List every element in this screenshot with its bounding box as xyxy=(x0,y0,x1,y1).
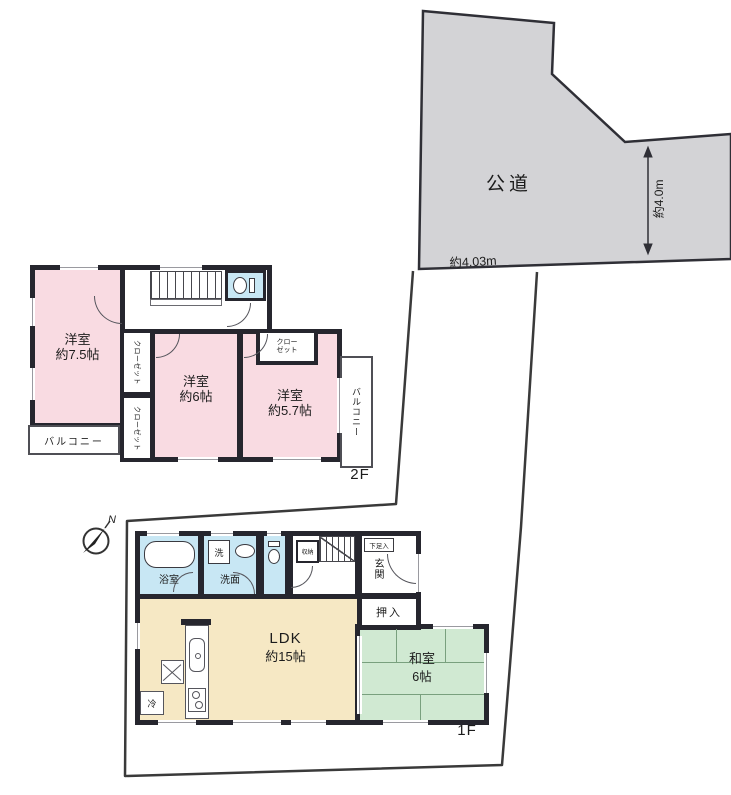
room-5-7-label: 洋室 約5.7帖 xyxy=(238,389,342,419)
room-6-name: 洋室 xyxy=(183,374,209,389)
room-7-5-label: 洋室 約7.5帖 xyxy=(30,333,125,363)
window xyxy=(433,624,473,629)
kitchen-sink-icon xyxy=(189,638,205,672)
compass-icon: N xyxy=(83,514,116,554)
room-7-5-name: 洋室 xyxy=(64,332,90,347)
floor2-plan: クローゼット クローゼット クロー ゼット バルコニー バルコニー 洋室 xyxy=(28,263,380,487)
room-5-7-size: 約5.7帖 xyxy=(268,403,312,418)
window xyxy=(267,531,281,536)
tatami-line xyxy=(420,694,421,720)
shoe-cabinet: 下足入 xyxy=(364,538,394,552)
window xyxy=(273,457,321,462)
window xyxy=(158,720,196,725)
tatami-line xyxy=(360,694,484,695)
window xyxy=(211,531,233,536)
toilet-icon-1f xyxy=(268,549,280,564)
ldk-name: LDK xyxy=(269,630,301,647)
window xyxy=(291,720,326,725)
stairs-ledge xyxy=(150,299,222,306)
public-road-area xyxy=(419,11,731,269)
washitsu-size: 6帖 xyxy=(412,670,431,684)
balcony-bottom: バルコニー xyxy=(28,425,120,455)
north-label: N xyxy=(108,514,116,526)
balcony-bottom-label: バルコニー xyxy=(44,433,104,448)
room-7-5-size: 約7.5帖 xyxy=(55,347,99,362)
closet-upper-label: クローゼット xyxy=(132,340,142,385)
balcony-right: バルコニー xyxy=(340,356,373,468)
toilet-room-2f xyxy=(225,270,266,301)
basin-icon xyxy=(235,544,255,558)
window xyxy=(233,720,281,725)
window xyxy=(135,623,140,649)
room-6-label: 洋室 約6帖 xyxy=(150,375,242,405)
floor1-plan: 洗 収納 下足入 玄関 冷 押入 xyxy=(133,528,493,742)
bath-label: 浴室 xyxy=(135,575,203,587)
floor1-label: 1F xyxy=(447,722,487,739)
washroom-label: 洗面 xyxy=(199,575,261,587)
prep-table-icon xyxy=(161,660,184,684)
toilet-tank-icon-1f xyxy=(268,541,280,547)
floor-plan-canvas: N 公道 約4.0m 約4.03m クローゼット クローゼット クロー ゼット … xyxy=(0,0,731,795)
oshiire-label: 押入 xyxy=(376,604,402,620)
closet-5-7-label-2: ゼット xyxy=(277,347,298,355)
refrigerator: 冷 xyxy=(140,691,164,715)
stairs-1f-icon xyxy=(319,536,355,562)
window xyxy=(30,298,35,326)
storage-label: 収納 xyxy=(301,547,313,556)
closet-lower-label: クローゼット xyxy=(132,406,142,451)
ldk-label: LDK 約15帖 xyxy=(218,630,353,667)
closet-lower: クローゼット xyxy=(120,394,154,462)
washing-machine-icon: 洗 xyxy=(208,540,230,564)
toilet-icon-2f xyxy=(233,277,247,294)
toilet-room-1f xyxy=(259,531,290,599)
bathtub-icon xyxy=(144,541,195,568)
room-6-size: 約6帖 xyxy=(179,389,212,404)
fridge-label: 冷 xyxy=(147,697,156,710)
oshiire-closet: 押入 xyxy=(357,594,421,630)
ldk-size: 約15帖 xyxy=(265,649,305,664)
window xyxy=(30,368,35,400)
toilet-tank-icon-2f xyxy=(249,278,255,293)
washitsu-name: 和室 xyxy=(409,651,435,666)
window xyxy=(178,457,218,462)
closet-5-7-label-1: クロー xyxy=(277,339,298,347)
closet-upper: クローゼット xyxy=(120,329,154,396)
road-width-label: 約4.0m xyxy=(653,167,667,231)
stove-icon xyxy=(188,688,206,712)
road-label: 公道 xyxy=(477,174,541,196)
room-5-7-name: 洋室 xyxy=(277,388,303,403)
window xyxy=(147,531,179,536)
stairs-2f-icon xyxy=(150,271,222,299)
window xyxy=(160,265,202,270)
entrance-label: 玄関 xyxy=(370,558,385,580)
balcony-right-label: バルコニー xyxy=(350,387,363,437)
washitsu-label: 和室 6帖 xyxy=(355,650,489,687)
storage-box: 収納 xyxy=(296,540,319,563)
shoe-cabinet-label: 下足入 xyxy=(369,540,389,550)
window xyxy=(60,265,98,270)
washer-label: 洗 xyxy=(214,546,223,559)
window xyxy=(383,720,428,725)
window xyxy=(416,554,421,592)
floor2-label: 2F xyxy=(340,466,380,483)
